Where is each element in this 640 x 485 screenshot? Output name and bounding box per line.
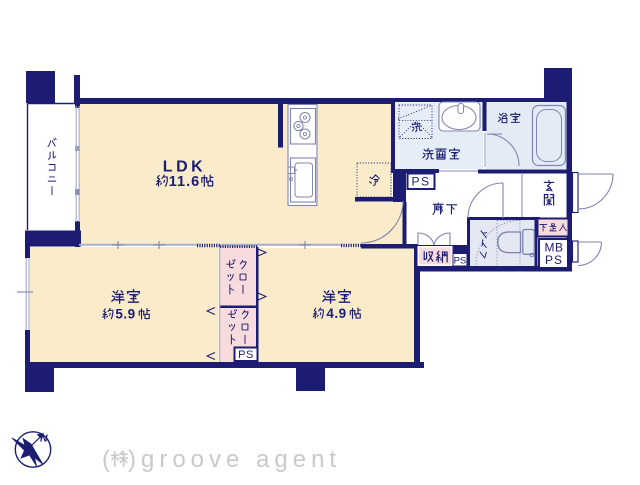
svg-text:PS: PS (238, 349, 254, 361)
svg-text:PS: PS (545, 253, 563, 267)
svg-text:PS: PS (411, 175, 430, 189)
svg-text:)groove agent: )groove agent (128, 446, 341, 473)
svg-text:5.9: 5.9 (115, 307, 135, 322)
svg-text:N: N (40, 433, 48, 445)
svg-text:PS: PS (454, 256, 467, 267)
svg-text:LDK: LDK (163, 159, 206, 176)
svg-text:4.9: 4.9 (326, 306, 346, 321)
svg-text:(: ( (102, 446, 111, 473)
svg-text:11.6: 11.6 (169, 174, 200, 190)
